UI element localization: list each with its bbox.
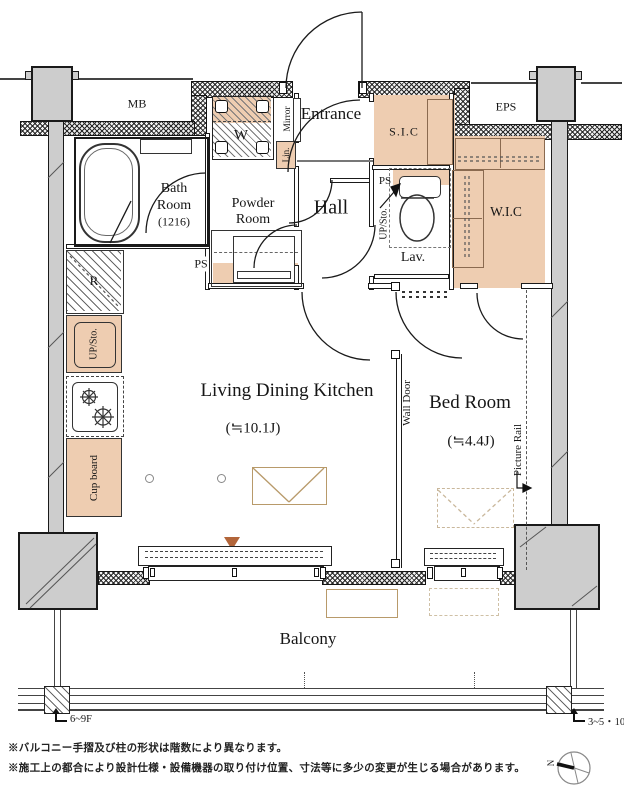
table-diagonal bbox=[253, 468, 289, 502]
wall-door-label: Wall Door bbox=[401, 380, 413, 426]
lav-label: Lav. bbox=[401, 250, 425, 266]
column-diagonal bbox=[520, 527, 546, 547]
bedroom-size-label: (≒4.4J) bbox=[447, 432, 494, 451]
wall-slash bbox=[48, 162, 64, 178]
wall-slash bbox=[48, 462, 64, 478]
compass-needle bbox=[557, 764, 574, 768]
picture-rail-label: Picture Rail bbox=[512, 424, 524, 476]
front-door-arc bbox=[286, 12, 362, 88]
floorplan-canvas: MB EPS Entrance S.I.C W Mirror Lin. Bath… bbox=[0, 0, 624, 800]
bedroom-door-arc bbox=[396, 292, 462, 358]
sic-label: S.I.C bbox=[389, 125, 419, 140]
wic-door-arc bbox=[477, 293, 523, 339]
compass bbox=[557, 752, 590, 784]
washer-label: W bbox=[234, 128, 248, 145]
powder-label-2: Room bbox=[236, 212, 270, 228]
entrance-label: Entrance bbox=[301, 104, 361, 124]
ldk-size-label: (≒10.1J) bbox=[226, 419, 281, 438]
toilet-bowl bbox=[400, 195, 434, 241]
floor-range-left-label: 6~9F bbox=[70, 714, 92, 725]
hall-label: Hall bbox=[314, 197, 348, 220]
mirror-label: Mirror bbox=[283, 106, 293, 131]
mb-label: MB bbox=[128, 97, 147, 112]
balcony-label: Balcony bbox=[280, 629, 337, 649]
upsto-lav-label: UP/Sto. bbox=[379, 208, 390, 239]
hall-ldk-door-arc bbox=[302, 292, 370, 360]
bath-label-3: (1216) bbox=[158, 215, 190, 230]
footnote-1: ※バルコニー手摺及び柱の形状は階数により異なります。 bbox=[8, 740, 287, 755]
wall-slash bbox=[551, 451, 568, 468]
north-label: N bbox=[546, 760, 556, 767]
bath-detail-line bbox=[110, 201, 131, 243]
upsto-kitchen-label: UP/Sto. bbox=[89, 328, 100, 359]
cupboard-label: Cup board bbox=[88, 455, 100, 501]
footnote-2: ※施工上の都合により設計仕様・設備機器の取り付け位置、寸法等に多少の変更が生じる… bbox=[8, 760, 525, 775]
wic-label: W.I.C bbox=[490, 204, 522, 220]
fridge-label: R bbox=[90, 273, 99, 289]
ps-powder-label: PS bbox=[193, 257, 208, 272]
bath-label-1: Bath bbox=[161, 181, 187, 197]
wall-slash bbox=[551, 301, 568, 318]
column-diagonal bbox=[26, 538, 94, 604]
column-diagonal bbox=[30, 544, 96, 608]
ps-lav-label: PS bbox=[379, 175, 391, 187]
placeholder-diagonal bbox=[438, 490, 474, 524]
placeholder-diagonal bbox=[474, 490, 511, 524]
table-diagonal bbox=[289, 468, 324, 502]
wall-slash bbox=[48, 332, 64, 348]
powder-label-1: Powder bbox=[232, 196, 275, 212]
lav-door-arc bbox=[322, 225, 375, 278]
column-diagonal bbox=[572, 586, 597, 606]
bedroom-label: Bed Room bbox=[429, 392, 511, 414]
bath-label-2: Room bbox=[157, 198, 191, 214]
linen-label: Lin. bbox=[281, 148, 291, 163]
floor-range-right-label: 3~5・10F bbox=[588, 714, 624, 729]
ldk-label: Living Dining Kitchen bbox=[200, 380, 373, 402]
ps-pointer-line bbox=[380, 192, 394, 208]
eps-label: EPS bbox=[496, 100, 517, 115]
powder-door-arc bbox=[254, 225, 297, 268]
